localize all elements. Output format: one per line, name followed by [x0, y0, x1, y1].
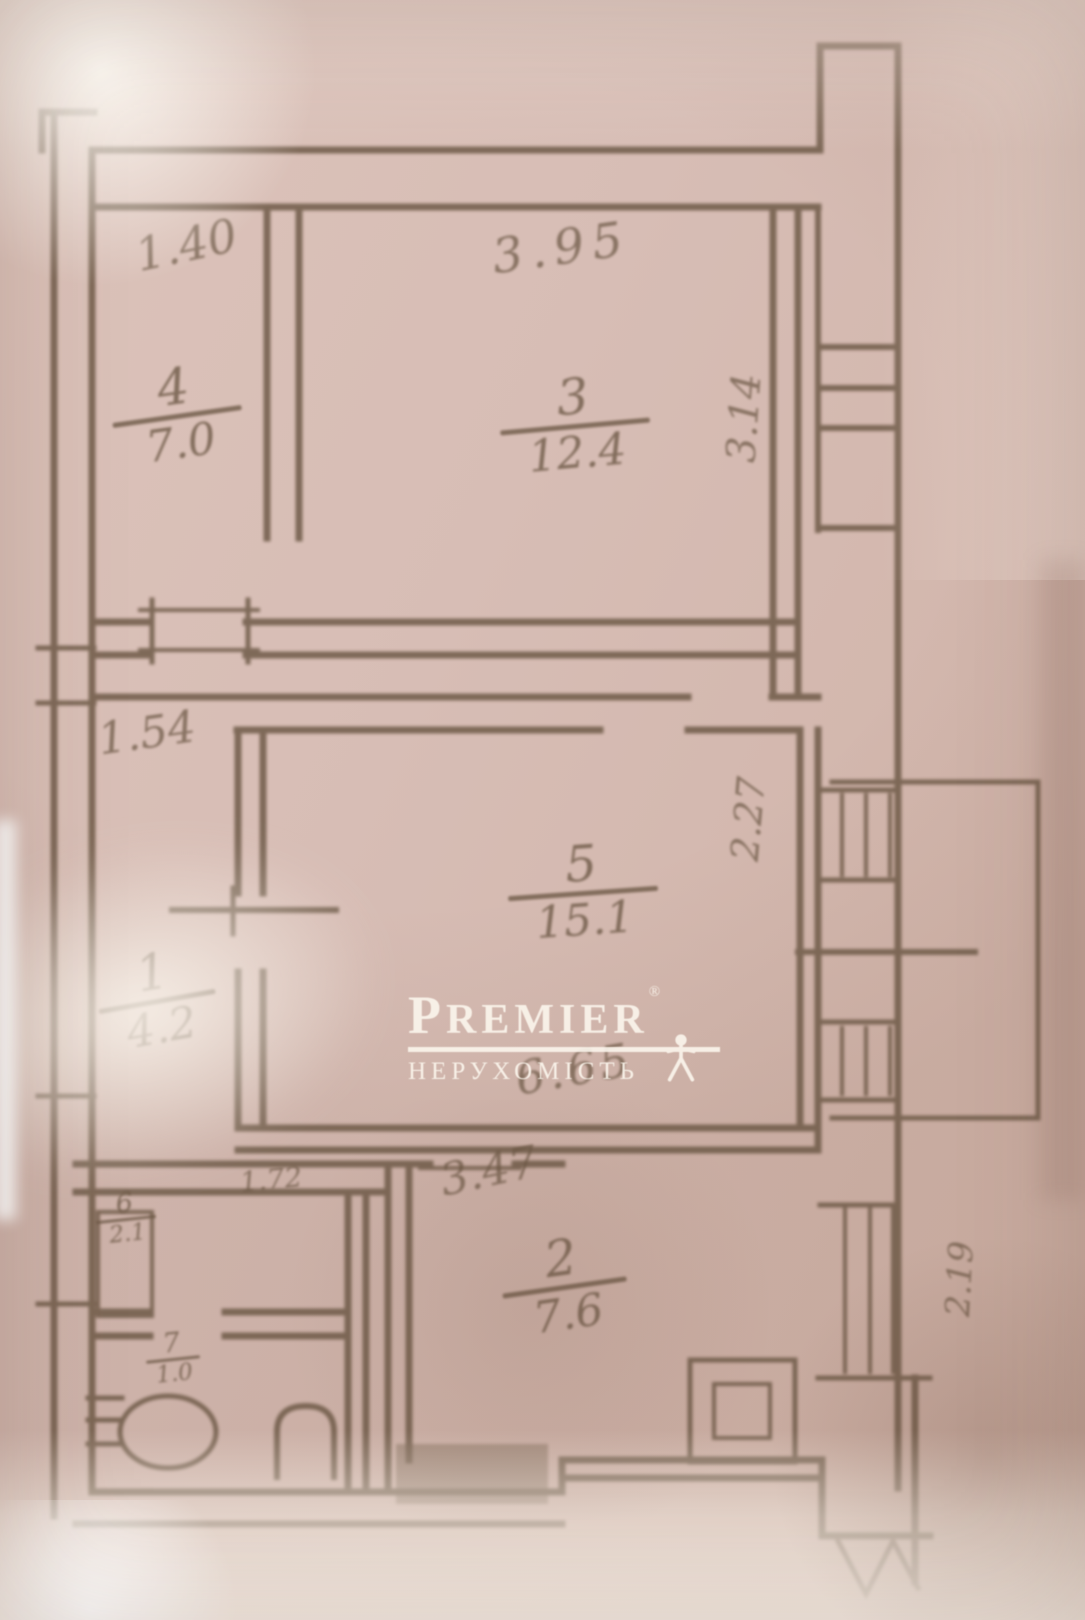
room-7-label: 7 1.0 [143, 1329, 202, 1389]
stair-shaft [818, 207, 898, 530]
room-1-label: 1 4.2 [90, 941, 224, 1061]
room-2-label: 2 7.6 [496, 1228, 634, 1345]
balcony [798, 782, 1038, 1118]
room-7-area: 1.0 [155, 1361, 194, 1388]
dim-kitchen-depth: 2.19 [941, 1240, 979, 1317]
wall-break-symbol [838, 1541, 918, 1594]
dim-room3-depth: 3.14 [721, 372, 767, 464]
floor-plan-photo: 4 7.0 3 12.4 5 15.1 1 4.2 2 7.6 6 2.1 7 … [0, 0, 1085, 1620]
door-arch-icon [277, 1406, 334, 1477]
stove-icon [690, 1360, 795, 1462]
room-6-area: 2.1 [108, 1221, 147, 1248]
room-5-number: 5 [564, 841, 599, 888]
dim-room5-depth: 2.27 [726, 775, 771, 863]
room-6-label: 6 2.1 [93, 1189, 158, 1249]
room-1-number: 1 [133, 948, 172, 998]
room-4-label: 4 7.0 [106, 356, 249, 474]
window-rails [818, 790, 930, 1378]
toilet-bowl-icon [120, 1396, 216, 1468]
room-3-area: 12.4 [527, 428, 628, 480]
entry-stairs-block [396, 1444, 548, 1504]
watermark: PREMIER ® НЕРУХОМІСТЬ [408, 988, 720, 1086]
person-figure-icon [664, 1032, 698, 1082]
room-5-area: 15.1 [535, 896, 636, 947]
room-2-number: 2 [542, 1234, 580, 1283]
dim-hall-width: 1.54 [95, 705, 198, 762]
room-7-number: 7 [162, 1331, 182, 1357]
watermark-brand: PREMIER [408, 988, 649, 1042]
dim-bath-width: 1.72 [239, 1163, 304, 1197]
room-4-area: 7.0 [143, 417, 218, 470]
room-3-number: 3 [555, 374, 591, 422]
room-3-label: 3 12.4 [496, 369, 654, 483]
room-2-area: 7.6 [531, 1288, 606, 1341]
room-5-label: 5 15.1 [505, 837, 662, 948]
room-1-area: 4.2 [124, 1001, 201, 1056]
registered-trademark-icon: ® [649, 984, 660, 1001]
room-4-number: 4 [154, 363, 192, 412]
room-6-number: 6 [115, 1191, 135, 1217]
